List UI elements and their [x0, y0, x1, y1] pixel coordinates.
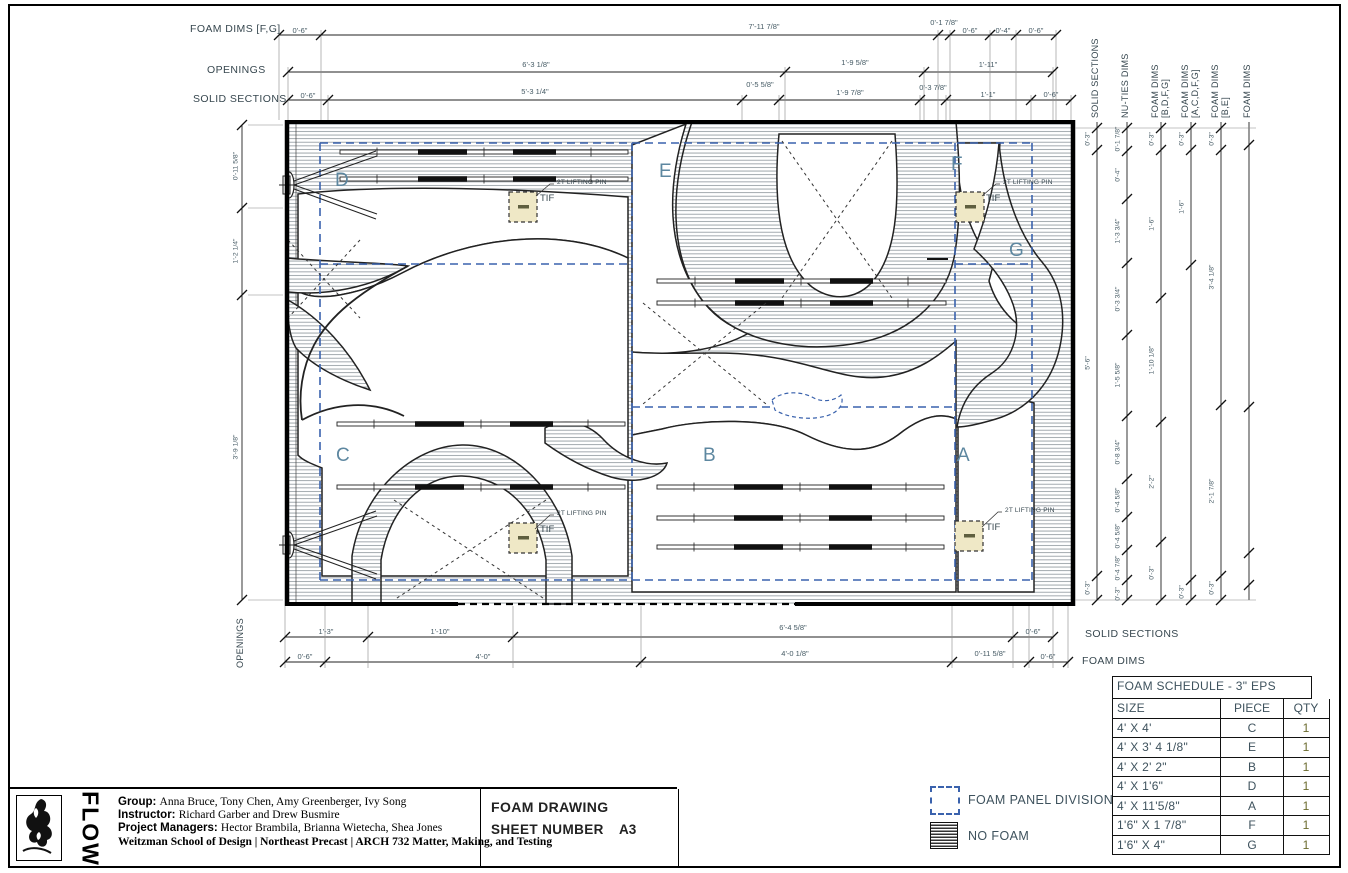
qty-cell: 1: [1283, 777, 1328, 796]
piece-label-f: F: [951, 154, 964, 176]
drawing-sheet: FOAM DIMS [F,G] OPENINGS SOLID SECTIONS …: [0, 0, 1348, 873]
dim: 1'-1": [981, 90, 996, 99]
dim: 1'-11": [979, 60, 998, 69]
qty-cell: 1: [1283, 719, 1328, 738]
dim: 1'-6": [1149, 217, 1156, 231]
dim: 1'-10 1/8": [1149, 346, 1156, 375]
col-label-line: [A,C,D,F,G]: [1191, 64, 1201, 118]
schedule-row: 4' X 11'5/8" A 1: [1112, 797, 1330, 817]
dim: 0'-3": [1179, 585, 1186, 599]
label-solid-sections-bottom: SOLID SECTIONS: [1085, 628, 1179, 640]
flow-wordmark: FLOW: [77, 791, 104, 867]
size-cell: 4' X 4': [1113, 721, 1220, 735]
dim: 6'-4 5/8": [779, 623, 806, 632]
col-label-line: [B,D,F,G]: [1161, 64, 1171, 118]
piece-cell: B: [1220, 758, 1283, 777]
col-label-line: SOLID SECTIONS: [1090, 38, 1100, 118]
label-openings-top: OPENINGS: [207, 64, 266, 76]
dim: 1'-10": [430, 627, 449, 636]
col-label-foam-dims: FOAM DIMS: [1243, 64, 1253, 118]
col-label-foam-dims-acdfg: FOAM DIMS[A,C,D,F,G]: [1181, 64, 1200, 118]
dim: 0'-5 5/8": [746, 80, 773, 89]
dim: 0'-4": [996, 26, 1011, 35]
instructor-label: Instructor:: [118, 809, 176, 821]
qty-cell: 1: [1283, 836, 1328, 855]
dim: 0'-1 7/8": [1115, 127, 1122, 152]
dim: 0'-6": [298, 652, 313, 661]
flow-logo-figure: [17, 796, 58, 857]
dim: 1'-9 5/8": [841, 58, 868, 67]
legend-panel-division-swatch: [930, 786, 960, 815]
piece-cell: E: [1220, 738, 1283, 757]
drawing-title: FOAM DRAWING: [491, 799, 609, 815]
legend-no-foam-swatch: [930, 822, 958, 849]
dim: 2'-2": [1149, 475, 1156, 489]
label-openings-left: OPENINGS: [236, 618, 246, 668]
size-cell: 4' X 3' 4 1/8": [1113, 740, 1220, 754]
piece-cell: A: [1220, 797, 1283, 816]
dim: 0'-3": [1149, 132, 1156, 146]
dim: 0'-3": [1209, 581, 1216, 595]
dim: 1'-3 3/4": [1115, 219, 1122, 244]
schedule-row: 4' X 2' 2" B 1: [1112, 758, 1330, 778]
dim: 0'-6": [1041, 652, 1056, 661]
piece-cell: F: [1220, 816, 1283, 835]
dim: 1'-9 7/8": [836, 88, 863, 97]
dim: 0'-1 7/8": [930, 18, 957, 27]
label-solid-sections-top: SOLID SECTIONS: [193, 93, 287, 105]
piece-label-d: D: [335, 170, 350, 192]
col-label-nu-ties-dims: NU-TIES DIMS: [1121, 53, 1131, 118]
piece-cell: G: [1220, 836, 1283, 855]
col-piece: PIECE: [1220, 699, 1283, 718]
col-label-line: NU-TIES DIMS: [1120, 53, 1130, 118]
dim: 0'-6": [293, 26, 308, 35]
qty-cell: 1: [1283, 758, 1328, 777]
label-foam-dims-fg: FOAM DIMS [F,G]: [190, 23, 281, 35]
dim: 5'-3 1/4": [521, 87, 548, 96]
group-label: Group:: [118, 796, 156, 808]
dim: 4'-0": [476, 652, 491, 661]
dim: 0'-6": [1029, 26, 1044, 35]
dim: 0'-3 7/8": [919, 83, 946, 92]
dim: 3'-4 1/8": [1209, 265, 1216, 290]
legend-no-foam-label: NO FOAM: [968, 829, 1029, 843]
dim: 0'-6": [1026, 627, 1041, 636]
dim: 0'-6": [963, 26, 978, 35]
dim: 0'-6": [1044, 90, 1059, 99]
dim: 3'-9 1/8": [233, 435, 240, 460]
piece-cell: D: [1220, 777, 1283, 796]
dim: 7'-11 7/8": [748, 22, 779, 31]
schedule-row: 4' X 1'6" D 1: [1112, 777, 1330, 797]
dim: 0'-3": [1209, 132, 1216, 146]
schedule-row: 1'6" X 4" G 1: [1112, 836, 1330, 856]
lifting-pin-tag: TIF: [986, 522, 1000, 533]
col-size: SIZE: [1113, 701, 1220, 715]
schedule-row: 4' X 3' 4 1/8" E 1: [1112, 738, 1330, 758]
dim: 0'-3": [1085, 581, 1092, 595]
piece-cell: C: [1220, 719, 1283, 738]
dim: 0'-6": [301, 91, 316, 100]
col-label-line: [B,E]: [1221, 64, 1231, 118]
col-label-line: FOAM DIMS: [1242, 64, 1252, 118]
schedule-row: 4' X 4' C 1: [1112, 719, 1330, 739]
dim: 0'-3": [1085, 132, 1092, 146]
schedule-title: FOAM SCHEDULE - 3" EPS: [1112, 676, 1312, 699]
pm-label: Project Managers:: [118, 822, 218, 834]
sheet-number-label: SHEET NUMBER: [491, 822, 604, 837]
title-block: FLOW Group: Anna Bruce, Tony Chen, Amy G…: [10, 787, 677, 866]
dim: 0'-8 3/4": [1115, 440, 1122, 465]
dim: 1'-3": [319, 627, 334, 636]
piece-label-a: A: [957, 445, 971, 467]
sheet-title-box: FOAM DRAWING SHEET NUMBER A3: [480, 789, 679, 866]
col-label-solid-sections: SOLID SECTIONS: [1091, 38, 1101, 118]
dim: 0'-3 3/4": [1115, 287, 1122, 312]
dim: 0'-11 5/8": [974, 649, 1005, 658]
col-qty: QTY: [1283, 699, 1328, 718]
dim: 1'-6": [1179, 200, 1186, 214]
foam-schedule-table: FOAM SCHEDULE - 3" EPS SIZE PIECE QTY 4'…: [1112, 676, 1330, 855]
piece-label-b: B: [703, 445, 717, 467]
dim: 0'-3": [1179, 132, 1186, 146]
dim: 0'-4": [1115, 168, 1122, 182]
size-cell: 1'6" X 1 7/8": [1113, 818, 1220, 832]
pm-value: Hector Brambila, Brianna Wietecha, Shea …: [221, 822, 442, 834]
dim: 5'-6": [1085, 356, 1092, 370]
lifting-pin-tag: TIF: [986, 193, 1000, 204]
lifting-pin-note: 2T LIFTING PIN: [1005, 507, 1055, 514]
legend-panel-division-label: FOAM PANEL DIVISION: [968, 793, 1113, 807]
dim: 0'-4 7/8": [1115, 556, 1122, 581]
dim: 6'-3 1/8": [522, 60, 549, 69]
size-cell: 1'6" X 4": [1113, 838, 1220, 852]
qty-cell: 1: [1283, 816, 1328, 835]
dim: 0'-3": [1149, 566, 1156, 580]
size-cell: 4' X 11'5/8": [1113, 799, 1220, 813]
group-value: Anna Bruce, Tony Chen, Amy Greenberger, …: [160, 796, 407, 808]
dim: 2'-1 7/8": [1209, 479, 1216, 504]
dim: 1'-5 5/8": [1115, 363, 1122, 388]
qty-cell: 1: [1283, 738, 1328, 757]
lifting-pin-note: 2T LIFTING PIN: [557, 179, 607, 186]
dim: 0'-11 5/8": [233, 152, 240, 180]
piece-label-g: G: [1009, 240, 1025, 262]
dim: 0'-4 5/8": [1115, 524, 1122, 549]
piece-label-e: E: [659, 161, 673, 183]
size-cell: 4' X 2' 2": [1113, 760, 1220, 774]
size-cell: 4' X 1'6": [1113, 779, 1220, 793]
col-label-foam-dims-be: FOAM DIMS[B,E]: [1211, 64, 1230, 118]
lifting-pin-tag: TIF: [540, 193, 554, 204]
flow-logo: [16, 795, 62, 861]
lifting-pin-note: 2T LIFTING PIN: [1003, 179, 1053, 186]
schedule-header-row: SIZE PIECE QTY: [1112, 699, 1330, 719]
sheet-number: A3: [619, 822, 636, 837]
dim: 1'-2 1/4": [233, 239, 240, 264]
qty-cell: 1: [1283, 797, 1328, 816]
piece-label-c: C: [336, 445, 351, 467]
lifting-pin-tag: TIF: [540, 524, 554, 535]
schedule-row: 1'6" X 1 7/8" F 1: [1112, 816, 1330, 836]
label-foam-dims-bottom: FOAM DIMS: [1082, 655, 1145, 667]
dim: 0'-3": [1115, 587, 1122, 601]
instructor-value: Richard Garber and Drew Busmire: [179, 809, 340, 821]
col-label-foam-dims-bdfg: FOAM DIMS[B,D,F,G]: [1151, 64, 1170, 118]
dim: 0'-4 5/8": [1115, 488, 1122, 513]
lifting-pin-note: 2T LIFTING PIN: [557, 510, 607, 517]
dim: 4'-0 1/8": [781, 649, 808, 658]
